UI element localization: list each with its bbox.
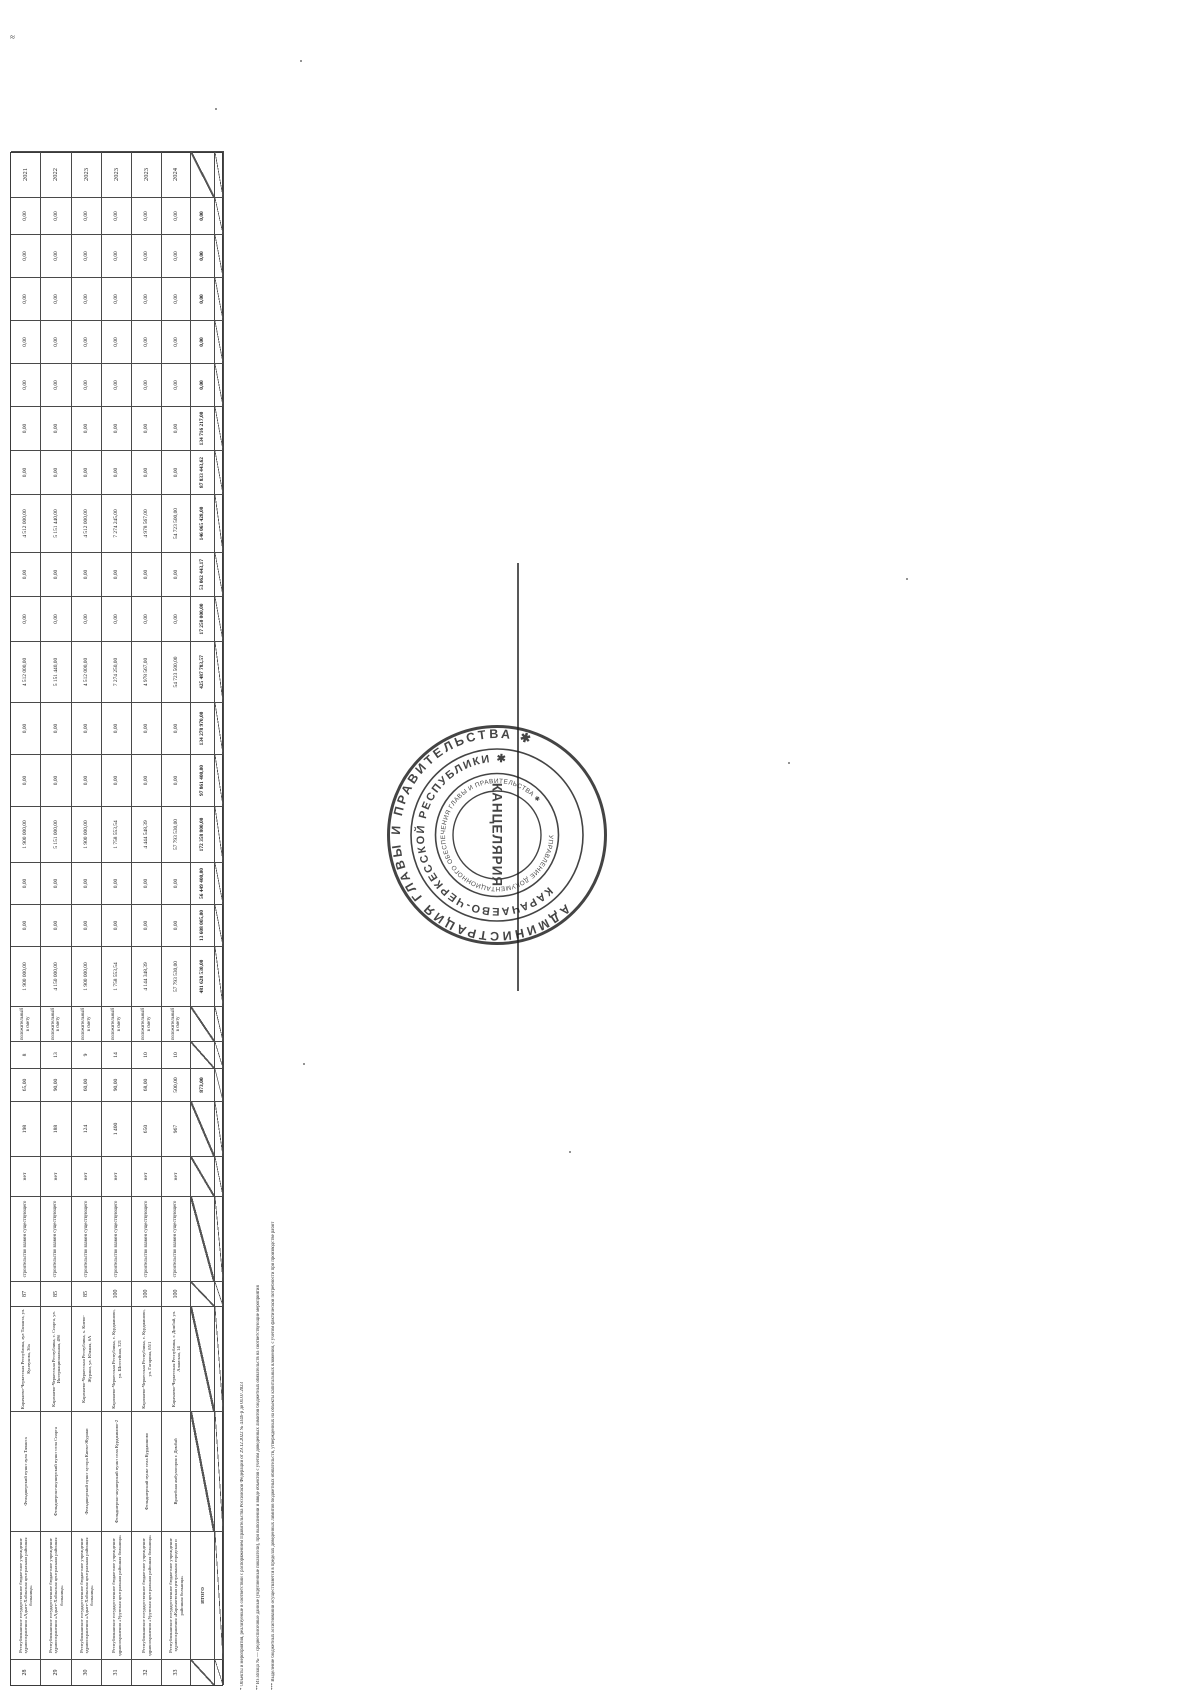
table-cell: 87 (11, 1281, 41, 1306)
table-cell: 2023 (72, 151, 102, 197)
table-cell: Карачаево-Черкесская Республика, с. Курд… (132, 1306, 162, 1411)
table-cell: 0,00 (162, 862, 191, 904)
table-cell: 0,00 (72, 596, 102, 641)
table-cell: 0,00 (132, 234, 162, 277)
table-cell: 4 978 567,00 (132, 641, 162, 702)
table-cell: 0,00 (162, 197, 191, 234)
table-cell: 0,00 (102, 596, 132, 641)
table-cell: 56 449 400,00 (191, 862, 215, 904)
table-cell: 0,00 (72, 904, 102, 946)
table-cell: нет (41, 1156, 72, 1196)
table-cell: 0,00 (11, 596, 41, 641)
table-cell: 0,00 (11, 862, 41, 904)
table-cell: 10 (162, 1041, 191, 1068)
table-cell: 1 900 000,00 (72, 946, 102, 1006)
table-cell: 0,00 (102, 904, 132, 946)
table-cell: 4 512 000,00 (72, 641, 102, 702)
table-cell: 0,00 (41, 277, 72, 320)
table-cell: Фельдшерский пункт села Курджиново (132, 1411, 162, 1531)
table-cell: 146 065 428,00 (191, 494, 215, 552)
table-cell: нет (132, 1156, 162, 1196)
table-cell: 0,00 (72, 702, 102, 754)
table-cell: 0,00 (162, 754, 191, 806)
table-cell: 0,00 (132, 450, 162, 494)
table-cell: строительство взамен существующего (41, 1196, 72, 1281)
table-cell: строительство взамен существующего (102, 1196, 132, 1281)
table-cell: 0,00 (162, 320, 191, 363)
table-cell: 85 (41, 1281, 72, 1306)
table-cell: 0,00 (72, 363, 102, 406)
table-cell (215, 1041, 224, 1068)
table-cell: 0,00 (132, 904, 162, 946)
table-cell: 4 512 000,00 (72, 494, 102, 552)
table-cell: 0,00 (72, 862, 102, 904)
table-cell: 124 (72, 1101, 102, 1156)
table-cell: 0,00 (41, 197, 72, 234)
table-cell: Врачебная амбулатория г. Домбай (162, 1411, 191, 1531)
table-cell: 0,00 (41, 450, 72, 494)
table-cell: 873,00 (191, 1068, 215, 1101)
table-cell: 0,00 (162, 363, 191, 406)
table-cell: 7 274 250,00 (102, 641, 132, 702)
table-cell: 0,00 (41, 552, 72, 596)
table-cell: 33 (162, 1659, 191, 1685)
table-cell (191, 1156, 215, 1196)
table-cell: Фельдшерский пункт аула Тапанта (11, 1411, 41, 1531)
footnote-3-text: *** Выделение бюджетных ассигнований осу… (271, 1042, 276, 1690)
table-cell: ИТОГО (191, 1531, 215, 1659)
table-cell: 57 793 530,00 (162, 806, 191, 862)
table-cell: Карачаево-Черкесская Республика, г. Домб… (162, 1306, 191, 1411)
table-cell: 0,00 (11, 552, 41, 596)
table-cell: 0,00 (72, 552, 102, 596)
table-cell: 0,00 (11, 702, 41, 754)
table-cell (215, 1196, 224, 1281)
table-cell (215, 450, 224, 494)
table-cell (215, 806, 224, 862)
table-cell: Карачаево-Черкесская Республика, с. Курд… (102, 1306, 132, 1411)
scan-corner-artifact: ≈ (10, 32, 15, 42)
table-cell (215, 151, 224, 197)
table-cell: 9 (72, 1041, 102, 1068)
table-cell: 0,00 (41, 406, 72, 450)
table-cell: положительный в смету (102, 1006, 132, 1041)
table-cell: нет (162, 1156, 191, 1196)
footnote-2-text: ** Из абзаца № — среднесписочные данные … (256, 1042, 261, 1690)
table-cell: строительство взамен существующего (72, 1196, 102, 1281)
table-cell: Республиканское государственное бюджетно… (41, 1531, 72, 1659)
table-cell (191, 1411, 215, 1531)
table-cell: 0,00 (162, 277, 191, 320)
table-cell: 2022 (41, 151, 72, 197)
table-cell: 1 400 (102, 1101, 132, 1156)
table-cell (215, 277, 224, 320)
table-cell: 0,00 (11, 197, 41, 234)
table-cell (215, 552, 224, 596)
table-cell: 0,00 (132, 552, 162, 596)
table-cell: положительный в смету (72, 1006, 102, 1041)
table-cell: 0,00 (102, 754, 132, 806)
table-cell: нет (102, 1156, 132, 1196)
table-cell: 54 723 500,00 (162, 494, 191, 552)
table-cell: Карачаево-Черкесская Республика, аул Тап… (11, 1306, 41, 1411)
footnote-2: ** Из абзаца № — среднесписочные данные … (256, 1042, 271, 1690)
table-cell: 0,00 (72, 406, 102, 450)
table-cell: 0,00 (162, 702, 191, 754)
table-cell: 54 723 500,00 (162, 641, 191, 702)
table-cell (215, 1156, 224, 1196)
table-cell: 2023 (132, 151, 162, 197)
table-cell: 0,00 (102, 277, 132, 320)
scan-speck (303, 1063, 305, 1065)
table-cell: 0,00 (11, 754, 41, 806)
table-cell: положительный в смету (41, 1006, 72, 1041)
table-cell: 0,00 (41, 596, 72, 641)
table-cell: строительство взамен существующего (132, 1196, 162, 1281)
table-cell: 0,00 (132, 406, 162, 450)
table-cell: 0,00 (41, 363, 72, 406)
table-cell: 0,00 (41, 234, 72, 277)
table-cell: 87 833 443,62 (191, 450, 215, 494)
table-cell: 198 (11, 1101, 41, 1156)
table-cell: 0,00 (11, 904, 41, 946)
table-cell: 17 250 000,00 (191, 596, 215, 641)
table-cell: 85 (72, 1281, 102, 1306)
table-cell (191, 1041, 215, 1068)
table-cell: 650 (132, 1101, 162, 1156)
table-cell (215, 1068, 224, 1101)
table-cell: 0,00 (102, 363, 132, 406)
table-cell (215, 904, 224, 946)
table-cell: 0,00 (102, 450, 132, 494)
table-cell: строительство взамен существующего (162, 1196, 191, 1281)
table-cell (215, 641, 224, 702)
table-cell: 0,00 (102, 406, 132, 450)
table-cell (215, 1411, 224, 1531)
table-cell: 0,00 (72, 234, 102, 277)
table-cell: Карачаево-Черкесская Республика, с. Спар… (41, 1306, 72, 1411)
table-cell: нет (11, 1156, 41, 1196)
table-cell: 1 758 553,54 (102, 946, 132, 1006)
table-cell: 0,00 (132, 197, 162, 234)
stamp: АДМИНИСТРАЦИЯ ГЛАВЫ И ПРАВИТЕЛЬСТВА ✱ КА… (385, 723, 609, 947)
table-cell: 0,00 (41, 862, 72, 904)
table-cell (191, 1196, 215, 1281)
table-cell: 0,00 (11, 234, 41, 277)
scan-speck (569, 1151, 571, 1153)
table-cell: Карачаево-Черкесская Республика, х. Киев… (72, 1306, 102, 1411)
table-cell: 100 (102, 1281, 132, 1306)
table-cell (215, 946, 224, 1006)
table-cell: 0,00 (191, 363, 215, 406)
table-cell: 10 (132, 1041, 162, 1068)
table-cell: 0,00 (132, 862, 162, 904)
table-cell: 90,00 (41, 1068, 72, 1101)
table-cell: 14 (102, 1041, 132, 1068)
table-cell: 0,00 (72, 754, 102, 806)
scan-speck (300, 60, 302, 62)
scanned-document-page: ≈ 28Республиканское государственное бюдж… (0, 0, 1200, 1697)
table-cell: Республиканское государственное бюджетно… (72, 1531, 102, 1659)
table-cell: 2021 (11, 151, 41, 197)
table-cell: 4 444 548,39 (132, 806, 162, 862)
stamp-center-text: КАНЦЕЛЯРИЯ (490, 783, 505, 887)
table-cell: 31 (102, 1659, 132, 1685)
table-cell: Республиканское государственное бюджетно… (102, 1531, 132, 1659)
table-cell: 0,00 (72, 450, 102, 494)
table-cell: Республиканское государственное бюджетно… (11, 1531, 41, 1659)
table-cell: 4 512 000,00 (11, 494, 41, 552)
table-cell: 0,00 (162, 234, 191, 277)
table-cell: 53 062 443,17 (191, 552, 215, 596)
table-cell: 0,00 (11, 406, 41, 450)
table-cell (215, 363, 224, 406)
table-cell: 68,00 (132, 1068, 162, 1101)
table-cell (215, 197, 224, 234)
table-cell: нет (72, 1156, 102, 1196)
table-cell: 134 716 217,00 (191, 406, 215, 450)
table-cell: 13 (41, 1041, 72, 1068)
scan-speck (906, 578, 908, 580)
table-cell: 0,00 (132, 320, 162, 363)
table-cell: 13 608 005,00 (191, 904, 215, 946)
scan-speck (788, 762, 790, 764)
table-cell (215, 596, 224, 641)
table-cell: 0,00 (41, 754, 72, 806)
table-cell: 0,00 (41, 904, 72, 946)
footnote-1: * Объекты и мероприятия, реализуемые в с… (240, 1042, 255, 1690)
table-cell: 0,00 (162, 406, 191, 450)
table-cell: 97 861 400,00 (191, 754, 215, 806)
table-cell: 5 151 000,00 (41, 806, 72, 862)
table-cell: 0,00 (191, 320, 215, 363)
table-cell: 188 (41, 1101, 72, 1156)
table-cell: 0,00 (102, 234, 132, 277)
table-cell: 1 900 000,00 (11, 806, 41, 862)
table-cell (215, 1659, 224, 1685)
footnote-1-text: * Объекты и мероприятия, реализуемые в с… (240, 1042, 245, 1690)
table-cell (215, 1281, 224, 1306)
table-cell: 4 150 000,00 (41, 946, 72, 1006)
table-cell: 90,00 (102, 1068, 132, 1101)
table-cell (191, 1659, 215, 1685)
table-cell: 967 (162, 1101, 191, 1156)
table-cell: 0,00 (132, 277, 162, 320)
table-cell: 134 278 970,00 (191, 702, 215, 754)
table-cell: 7 274 245,00 (102, 494, 132, 552)
table-cell: 0,00 (102, 320, 132, 363)
table-cell: 2023 (102, 151, 132, 197)
table-cell (215, 862, 224, 904)
table-cell: 0,00 (72, 197, 102, 234)
table-cell (215, 320, 224, 363)
table-cell: 0,00 (41, 320, 72, 363)
table-cell: 57 793 530,00 (162, 946, 191, 1006)
table-cell: 32 (132, 1659, 162, 1685)
table-cell: 425 487 783,57 (191, 641, 215, 702)
table-cell: 172 358 800,00 (191, 806, 215, 862)
table-cell: 0,00 (102, 702, 132, 754)
table-cell (215, 702, 224, 754)
table-cell: 0,00 (132, 754, 162, 806)
table-cell: Фельдшерско-акушерский пункт села Курджи… (102, 1411, 132, 1531)
table-cell: 0,00 (11, 320, 41, 363)
table-cell: 28 (11, 1659, 41, 1685)
table-cell (215, 494, 224, 552)
table-cell: 1 758 553,54 (102, 806, 132, 862)
table-cell: 0,00 (162, 904, 191, 946)
table-cell (215, 754, 224, 806)
table-cell: положительный в смету (132, 1006, 162, 1041)
table-cell: строительство взамен существующего (11, 1196, 41, 1281)
table-cell: 1 900 000,00 (72, 806, 102, 862)
table-cell: 0,00 (11, 277, 41, 320)
table-cell: Фельдшерский пункт хутора Киево-Жураки (72, 1411, 102, 1531)
table-cell (215, 1531, 224, 1659)
table-cell (191, 151, 215, 197)
table-cell (215, 406, 224, 450)
table-cell (215, 1101, 224, 1156)
table-cell: Фельдшерско-акушерский пункт села Спарта (41, 1411, 72, 1531)
table-cell (191, 1101, 215, 1156)
table-cell: 100 (132, 1281, 162, 1306)
table-cell: 0,00 (11, 450, 41, 494)
table-cell (191, 1281, 215, 1306)
table-cell (215, 234, 224, 277)
table-cell: 0,00 (162, 596, 191, 641)
table-cell: положительный в смету (162, 1006, 191, 1041)
table-cell: 100 (162, 1281, 191, 1306)
table-cell: 0,00 (41, 702, 72, 754)
table-cell: 0,00 (132, 596, 162, 641)
table-cell: 0,00 (102, 197, 132, 234)
table-cell: 0,00 (72, 277, 102, 320)
rotated-table: 28Республиканское государственное бюджет… (10, 152, 223, 1686)
table-cell: 0,00 (11, 363, 41, 406)
rotated-table-wrapper: 28Республиканское государственное бюджет… (10, 152, 223, 1686)
table-cell: 0,00 (132, 702, 162, 754)
table-cell: 0,00 (191, 197, 215, 234)
table-cell: 65,00 (11, 1068, 41, 1101)
table-cell: 60,00 (72, 1068, 102, 1101)
table-cell: 1 900 000,00 (11, 946, 41, 1006)
table-cell: Республиканское государственное бюджетно… (162, 1531, 191, 1659)
table-cell: Республиканское государственное бюджетно… (132, 1531, 162, 1659)
table-cell (191, 1006, 215, 1041)
table-cell: 29 (41, 1659, 72, 1685)
table-cell: 4 512 000,00 (11, 641, 41, 702)
table-cell: 4 978 567,00 (132, 494, 162, 552)
table-cell: 0,00 (191, 234, 215, 277)
table-cell (191, 1306, 215, 1411)
footnote-3: *** Выделение бюджетных ассигнований осу… (271, 1042, 286, 1690)
table-cell: 8 (11, 1041, 41, 1068)
table-cell: 481 628 530,00 (191, 946, 215, 1006)
table-cell: 0,00 (132, 363, 162, 406)
table-cell: 0,00 (162, 552, 191, 596)
table-cell: 5 151 440,00 (41, 641, 72, 702)
table-cell: 2024 (162, 151, 191, 197)
table-cell (215, 1006, 224, 1041)
table-cell: 0,00 (102, 552, 132, 596)
table-cell: 0,00 (162, 450, 191, 494)
table-cell (215, 1306, 224, 1411)
table-cell: 500,00 (162, 1068, 191, 1101)
table-cell: 0,00 (72, 320, 102, 363)
table-cell: положительный в смету (11, 1006, 41, 1041)
table-cell: 30 (72, 1659, 102, 1685)
table-cell: 4 144 348,39 (132, 946, 162, 1006)
scan-speck (215, 108, 217, 110)
table-cell: 0,00 (102, 862, 132, 904)
table-cell: 0,00 (191, 277, 215, 320)
table-cell: 5 151 440,00 (41, 494, 72, 552)
